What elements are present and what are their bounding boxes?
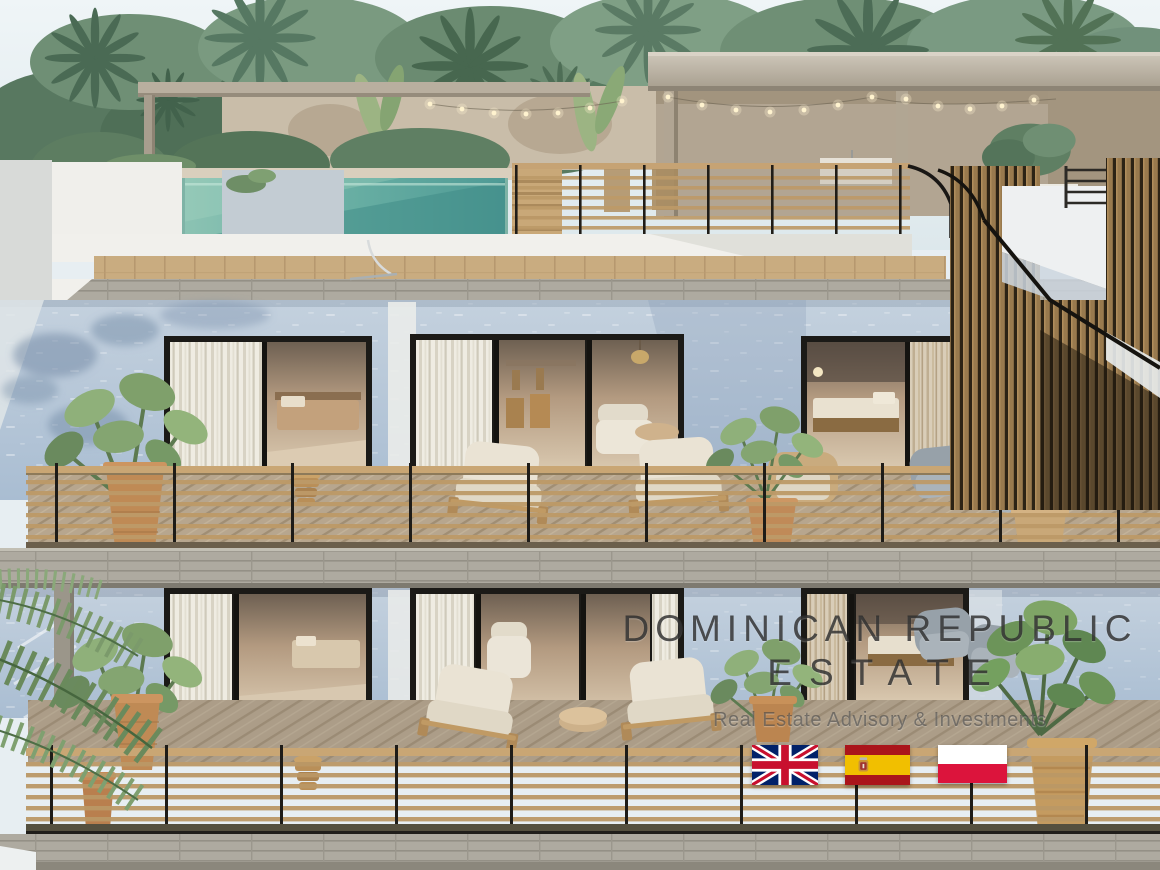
- property-render: DOMINICAN REPUBLIC ESTATE Real Estate Ad…: [0, 0, 1160, 870]
- sliding-door-a2: [164, 588, 372, 716]
- sliding-door-a: [164, 336, 372, 472]
- spain-flag[interactable]: [845, 745, 910, 785]
- villa-scene: [0, 0, 1160, 870]
- uk-flag-icon: [752, 745, 818, 785]
- floor-divider: [0, 548, 1160, 589]
- poland-flag-icon: [938, 745, 1007, 783]
- spain-flag-icon: [845, 745, 910, 785]
- poland-flag[interactable]: [938, 745, 1007, 783]
- boardwalk: [0, 834, 1160, 870]
- stair-structure: [938, 158, 1160, 510]
- uk-flag[interactable]: [752, 745, 818, 785]
